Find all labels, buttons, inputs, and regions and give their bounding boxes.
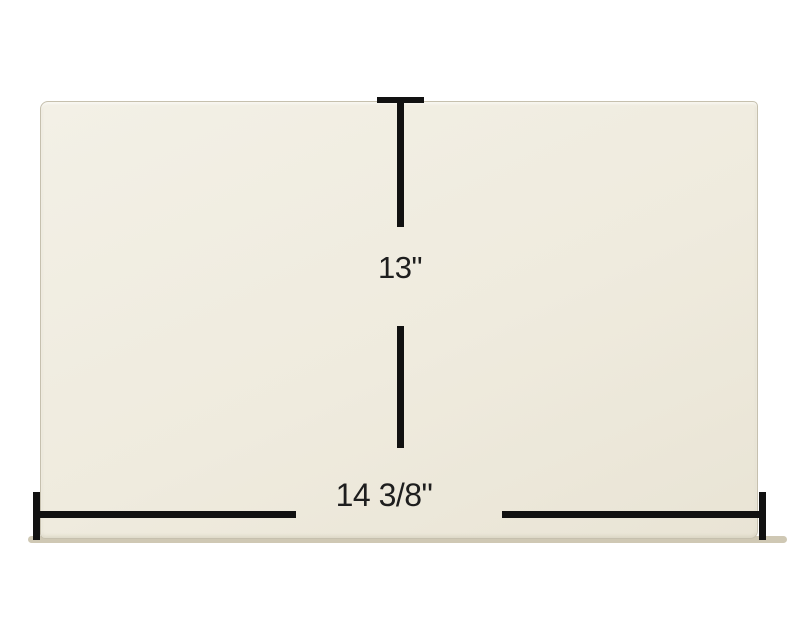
width-dimension-left-line bbox=[37, 511, 296, 518]
width-dimension-right-tick bbox=[759, 492, 766, 540]
height-dimension-label: 13" bbox=[378, 251, 422, 285]
height-dimension-upper-line bbox=[397, 100, 404, 227]
image-background: { "diagram": { "height_label": "13\"", "… bbox=[0, 0, 800, 644]
width-dimension-label: 14 3/8" bbox=[336, 478, 433, 513]
height-dimension-lower-line bbox=[397, 326, 404, 448]
width-dimension-right-line bbox=[502, 511, 763, 518]
dimension-diagram: 13" 14 3/8" bbox=[0, 0, 800, 644]
